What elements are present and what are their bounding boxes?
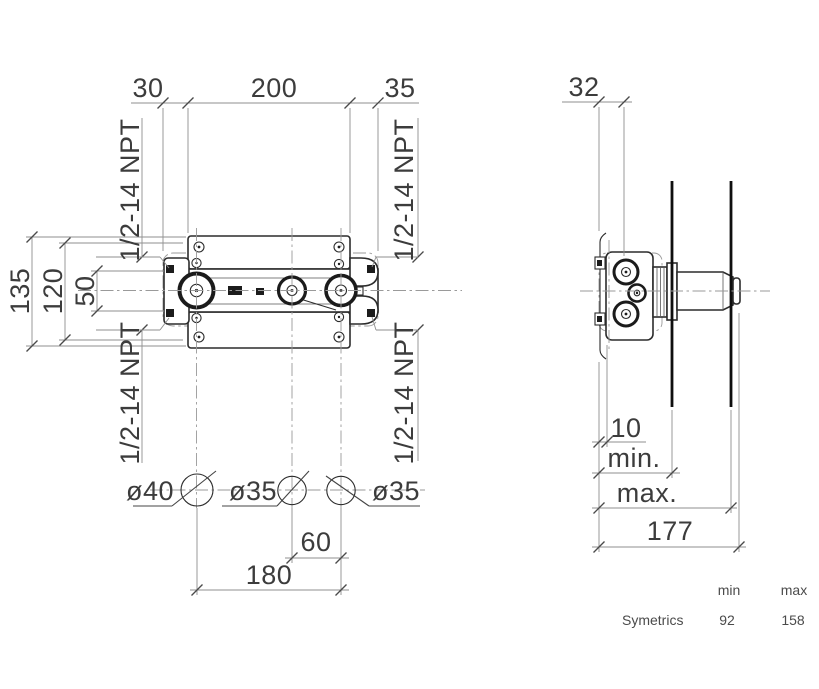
dim-label-min: min. <box>607 443 660 473</box>
technical-drawing-page: ø40 ø35 ø35 30 200 35 <box>0 0 819 689</box>
side-view: 32 10 min. max. 177 <box>562 72 770 553</box>
bottom-mounting-plate <box>188 312 350 348</box>
drill-holes: ø40 ø35 ø35 <box>126 471 420 506</box>
front-view: ø40 ø35 ø35 30 200 35 <box>5 73 462 596</box>
dim-top-right: 35 <box>384 73 415 103</box>
hole-label-left: ø40 <box>126 476 174 506</box>
spec-col-min: min <box>718 582 741 598</box>
dim-plaster-min-offset: 10 <box>610 413 641 443</box>
dimension-bottom-chain: 60 180 <box>190 508 349 596</box>
spec-col-max: max <box>781 582 807 598</box>
dim-depth-offset: 32 <box>568 72 599 102</box>
port-label-bottom-right: 1/2-14 NPT <box>389 321 419 464</box>
dim-bottom-outer: 180 <box>246 560 293 590</box>
installation-drawing: ø40 ø35 ø35 30 200 35 <box>0 0 819 689</box>
port-label-bottom-left: 1/2-14 NPT <box>115 321 145 464</box>
spec-row-min-value: 92 <box>719 612 735 628</box>
dim-height-mid: 120 <box>38 268 68 315</box>
spec-table: min max Symetrics 92 158 <box>622 582 807 628</box>
port-outlet-bottom-right <box>367 309 375 317</box>
dim-top-center: 200 <box>251 73 298 103</box>
dim-height-outer: 135 <box>5 268 35 315</box>
dimension-left-chain: 135 120 50 <box>5 232 186 352</box>
top-mounting-plate <box>188 236 350 269</box>
dimension-side-bottom: 10 min. max. 177 <box>592 313 746 553</box>
dimension-top-chain: 30 200 35 <box>131 73 419 251</box>
dim-top-left: 30 <box>132 73 163 103</box>
spec-row-name: Symetrics <box>622 612 683 628</box>
wall-bracket <box>595 233 606 359</box>
port-outlet-top-right <box>367 265 375 273</box>
port-label-top-left: 1/2-14 NPT <box>115 118 145 261</box>
dimension-side-top: 32 <box>562 72 632 256</box>
hole-label-right: ø35 <box>372 476 420 506</box>
dim-height-inner: 50 <box>70 275 100 306</box>
dim-label-max: max. <box>617 478 678 508</box>
dim-bottom-inner: 60 <box>300 527 331 557</box>
port-label-top-right: 1/2-14 NPT <box>389 118 419 261</box>
port-inlet-bottom-left <box>166 309 174 317</box>
spec-row-max-value: 158 <box>781 612 805 628</box>
hole-label-center: ø35 <box>229 476 277 506</box>
dim-total-depth: 177 <box>647 516 694 546</box>
